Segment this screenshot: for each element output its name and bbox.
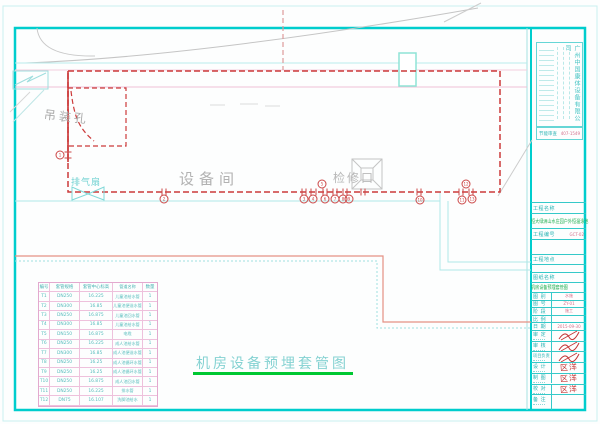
table-cell: T9 [39,368,50,377]
sleeve-tick [347,189,348,196]
table-cell: DN250 [50,340,80,349]
pipe-route-inner [448,201,531,262]
project-name-value-row: 恒大绿洲山水庄园户外恒温泳池 [531,213,586,228]
project-loc-row: 工程地点 [531,254,586,265]
table-cell: 1 [143,368,157,377]
table-cell: 1 [143,359,157,368]
table-cell: T5 [39,330,50,339]
cert-label: 节能审查 [539,131,557,137]
pipe-marker: 6 [321,195,330,204]
table-cell: 16.225 [80,340,113,349]
sign-label: 项目负责 [531,353,551,359]
project-name-row: 工程名称 [531,202,586,213]
drawing-title: 机房设备预埋套管图 [196,353,349,373]
diagonal-bottomleft-gray [10,92,30,112]
sleeve-tick [323,189,324,196]
table-cell: 儿童池便溢水管 [113,302,143,311]
sleeve-tick [365,189,366,196]
table-cell: 成人池给水管 [113,340,143,349]
project-no-label: 工程编号 [531,231,555,238]
table-cell: DN250 [50,311,80,320]
table-header-cell: 套管规格 [50,283,80,292]
drawing-title-underline [193,372,353,375]
cert-number: 407-1549 [561,131,580,136]
project-name-full: 恒大绿洲山水庄园户外恒温泳池 [531,218,588,225]
table-cell: 1 [143,377,157,386]
table-cell: 16.85 [80,302,113,311]
sleeve-tick [311,189,312,196]
table-header-cell: 编号 [39,283,50,292]
note-label: 备 注 [531,396,551,403]
table-cell: T11 [39,387,50,396]
pipe-route-outer [440,192,531,270]
table-cell: 16.875 [80,311,113,320]
sleeve-tick [302,189,303,196]
table-cell: 儿童池给水管 [113,292,143,301]
table-cell: 1 [143,302,157,311]
table-cell: DN300 [50,302,80,311]
table-cell: 1 [143,387,157,396]
project-no-value: GCT-02 [569,232,586,237]
sign-row: 设 计 区洋 [531,362,586,373]
breakline-zigzag [15,73,46,85]
table-cell: 1 [143,396,157,405]
company-microprint [539,46,554,122]
table-cell: 16.225 [80,387,113,396]
table-cell: 成人池循环水管 [113,359,143,368]
table-cell: T3 [39,311,50,320]
sleeve-table: 编号套管规格套管中心标高管道名称数量T1DN25016.225儿童池给水管1T2… [38,282,158,407]
table-cell: DN250 [50,387,80,396]
sleeve-tick [333,189,334,196]
table-cell: 16.25 [80,368,113,377]
exhaust-fan-label: 排气扇 [71,175,101,188]
table-cell: DN300 [50,321,80,330]
cad-drawing-canvas: 吊装孔 排气扇 设备间 检修口 机房设备预埋套管图 12345678910111… [0,0,600,424]
sign-label: 设 计 [531,363,551,370]
microprint-col [569,47,570,119]
table-cell: 排水管 [113,387,143,396]
meta-value: 水施 [565,293,573,299]
sleeve-tick [421,189,422,196]
table-cell: DN150 [50,330,80,339]
equipment-room-outline [68,71,500,192]
sign-label: 审 定 [531,331,551,338]
sign-row: 校 对 区洋 [531,384,586,395]
microprint-col [563,47,564,119]
pipe-marker: 4 [309,195,318,204]
sign-label: 校 对 [531,385,551,392]
table-cell: T2 [39,302,50,311]
table-cell: DN250 [50,292,80,301]
sleeve-tick [459,189,460,196]
table-cell: 1 [143,340,157,349]
table-cell: 16.85 [80,321,113,330]
table-cell: DN250 [50,377,80,386]
table-cell: 1 [143,349,157,358]
access-hatch-label: 检修口 [333,169,375,186]
pipe-marker: 3 [300,195,309,204]
pipe-marker: 10 [416,196,425,205]
project-loc-label: 工程地点 [531,256,555,263]
table-header-cell: 数量 [143,283,157,292]
edge-tick [65,152,72,153]
table-cell: 成人池回水管 [113,377,143,386]
sleeve-tick [361,189,362,196]
sleeve-tick [316,189,317,196]
sleeve-tick [417,189,418,196]
pipe-marker: 1 [56,151,65,160]
survey-arc [37,28,95,56]
pipe-marker: 2 [160,195,169,204]
company-name: 广州中国康体设备有限公司 [563,45,581,126]
table-cell: 16.875 [80,330,113,339]
table-cell: T6 [39,340,50,349]
table-cell: 洗脚池给水 [113,396,143,405]
table-cell: 儿童池回水管 [113,311,143,320]
pipe-marker: 13 [468,195,477,204]
sleeve-tick [463,189,464,196]
table-cell: T8 [39,359,50,368]
exhaust-fan-icon [72,187,104,200]
drawing-name-row: 机房设备预埋套管图 [531,282,586,292]
pipe-marker: 12 [462,180,471,189]
note-row: 备 注 [531,394,586,410]
project-name-label: 工程名称 [531,205,555,212]
table-cell: 成人池循环水管 [113,368,143,377]
table-cell: 16.875 [80,377,113,386]
table-cell: 电缆 [113,330,143,339]
sleeve-tick [166,189,167,196]
diagonal-bottomleft-cyan [13,90,44,122]
table-cell: DN300 [50,349,80,358]
meta-value: 施工 [565,308,573,314]
sleeve-tick [343,189,344,196]
table-cell: T10 [39,377,50,386]
drawing-name-value: 机房设备预埋套管图 [531,284,568,291]
sign-row: 项目负责 [531,351,586,362]
table-header-cell: 管道名称 [113,283,143,292]
company-stamp: 广州中国康体设备有限公司 [536,42,583,127]
drawing-name-label-row: 图纸名称 [531,272,586,282]
table-cell: T1 [39,292,50,301]
table-cell: 1 [143,311,157,320]
table-cell: 1 [143,330,157,339]
title-block: 广州中国康体设备有限公司 节能审查 407-1549 工程名称 恒大绿洲山水庄园… [531,28,586,410]
sign-label: 制 图 [531,374,551,381]
sleeve-tick [327,189,328,196]
sleeve-tick [473,189,474,196]
meta-row: 阶 段 施工 [531,307,586,315]
table-cell: DN250 [50,359,80,368]
sleeve-tick [306,189,307,196]
table-cell: 1 [143,321,157,330]
meta-value: ZY-01 [563,301,574,306]
sleeve-tick [162,189,163,196]
table-cell: 16.225 [80,292,113,301]
table-cell: 1 [143,292,157,301]
table-cell: 儿童池给水管 [113,321,143,330]
meta-row: 图 别 水施 [531,292,586,300]
table-cell: T4 [39,321,50,330]
pipe-marker: 11 [458,196,467,205]
project-no-row: 工程编号 GCT-02 [531,228,586,240]
edge-tick [65,158,72,159]
table-cell: T7 [39,349,50,358]
drawing-name-label: 图纸名称 [531,274,555,281]
vent-opening [399,53,416,86]
cert-row: 节能审查 407-1549 [536,127,583,140]
microprint-col [557,47,558,119]
pipe-marker: 9 [345,195,354,204]
pipe-marker: 5 [318,180,327,189]
table-cell: 16.85 [80,349,113,358]
sleeve-tick [469,189,470,196]
table-cell: 16.25 [80,359,113,368]
table-cell: 成人池便溢水管 [113,349,143,358]
sleeve-tick [337,189,338,196]
sign-label: 审 核 [531,342,551,349]
sign-row: 制 图 区洋 [531,373,586,384]
table-cell: 16.107 [80,396,113,405]
equipment-room-label: 设备间 [179,168,239,189]
table-header-cell: 套管中心标高 [80,283,113,292]
meta-row: 图 号 ZY-01 [531,300,586,308]
table-cell: DN250 [50,368,80,377]
table-cell: T12 [39,396,50,405]
meta-row: 比 例 [531,315,586,323]
table-cell: DN75 [50,396,80,405]
